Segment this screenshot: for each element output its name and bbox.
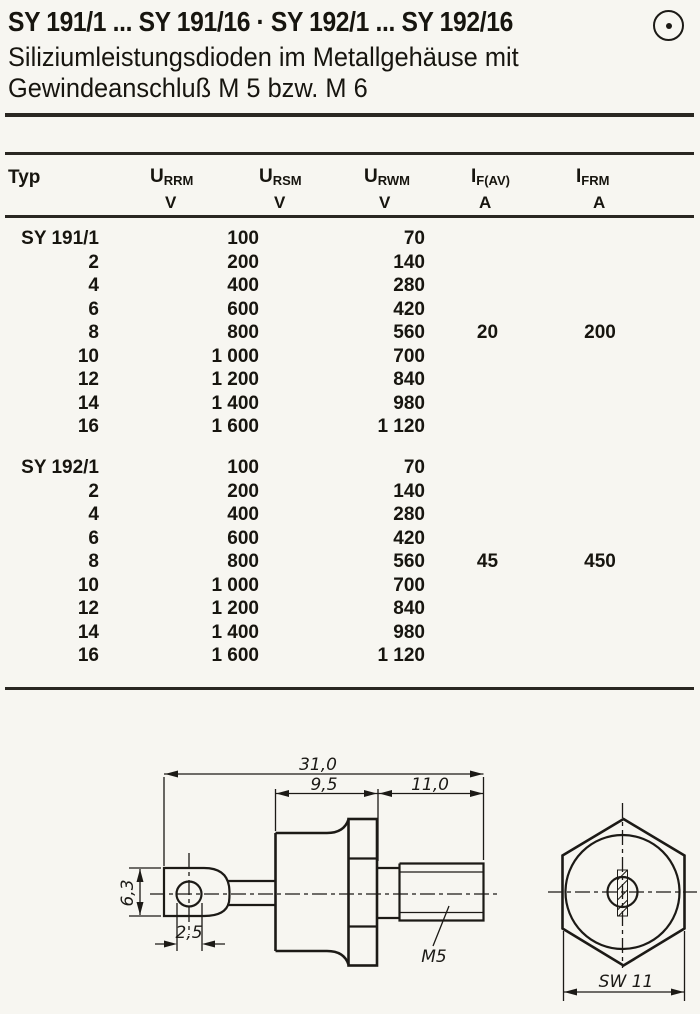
dim-hole-label: 2,5 <box>175 923 202 943</box>
table-row: 141 400980 <box>0 392 700 416</box>
case-body <box>276 820 349 965</box>
hex-facet-lines <box>349 859 378 927</box>
table-row: 6600420 <box>0 298 700 322</box>
urrm-value-cell: 1 400 <box>100 392 259 416</box>
urwm-value-cell: 140 <box>270 251 425 275</box>
type-cell: 10 <box>0 345 99 369</box>
column-unit: V <box>379 193 410 212</box>
dim-body-label: 9,5 <box>310 775 337 795</box>
urwm-value-cell: 840 <box>270 597 425 621</box>
table-row: 161 6001 120 <box>0 415 700 439</box>
horizontal-rule-table-top <box>5 152 694 155</box>
thread-label: M5 <box>421 947 446 967</box>
type-cell: 14 <box>0 621 99 645</box>
column-symbol: URRM <box>150 167 193 190</box>
column-header-typ: Typ <box>8 167 40 189</box>
lug-outline <box>164 868 230 916</box>
table-row: 4400280 <box>0 274 700 298</box>
urwm-value-cell: 140 <box>270 480 425 504</box>
urwm-value-cell: 1 120 <box>270 644 425 668</box>
arrowhead <box>470 790 483 797</box>
column-header-ifrm: IFRM A <box>576 167 609 212</box>
column-unit: A <box>593 193 609 212</box>
urrm-value-cell: 1 400 <box>100 621 259 645</box>
stud-neck <box>377 868 400 918</box>
urwm-value-cell: 70 <box>270 456 425 480</box>
wrench-size-label: SW 11 <box>599 972 654 992</box>
urwm-value-cell: 560 <box>270 550 425 574</box>
table-row: 161 6001 120 <box>0 644 700 668</box>
column-symbol: IF(AV) <box>471 167 510 190</box>
urwm-value-cell: 420 <box>270 298 425 322</box>
table-row: 141 400980 <box>0 621 700 645</box>
end-view-centerlines <box>548 803 697 968</box>
arrowhead <box>276 790 289 797</box>
urrm-value-cell: 1 000 <box>100 345 259 369</box>
side-view-drawing: 31,0 9,5 11,0 6,3 2,5 M5 <box>105 745 510 985</box>
datasheet-page: SY 191/1 ... SY 191/16 · SY 192/1 ... SY… <box>0 0 700 1014</box>
urrm-value-cell: 1 600 <box>100 644 259 668</box>
subtitle-line-2: Gewindeanschluß M 5 bzw. M 6 <box>8 73 368 104</box>
table-row: 2200140 <box>0 251 700 275</box>
table-row: 6600420 <box>0 527 700 551</box>
type-cell: 10 <box>0 574 99 598</box>
column-header-urwm: URWM V <box>364 167 410 212</box>
urrm-value-cell: 1 600 <box>100 415 259 439</box>
urwm-value-cell: 280 <box>270 503 425 527</box>
type-cell: 12 <box>0 597 99 621</box>
urrm-value-cell: 1 200 <box>100 597 259 621</box>
page-title-text: SY 191/1 ... SY 191/16 · SY 192/1 ... SY… <box>8 6 513 38</box>
urrm-value-cell: 200 <box>100 480 259 504</box>
type-cell: SY 192/1 <box>0 456 99 480</box>
table-block-sy192: SY 192/110070220014044002806600420880056… <box>0 456 700 668</box>
dim-lug-height-label: 6,3 <box>118 879 138 906</box>
urwm-value-cell: 700 <box>270 574 425 598</box>
arrowhead <box>165 771 178 778</box>
urwm-value-cell: 980 <box>270 621 425 645</box>
subtitle-line-1: Siliziumleistungsdioden im Metallgehäuse… <box>8 42 519 73</box>
column-header-ifav: IF(AV) A <box>471 167 510 212</box>
table-row: 121 200840 <box>0 597 700 621</box>
urrm-value-cell: 800 <box>100 321 259 345</box>
table-row: SY 191/110070 <box>0 227 700 251</box>
table-row: 101 000700 <box>0 345 700 369</box>
arrowhead <box>671 989 684 996</box>
type-cell: 12 <box>0 368 99 392</box>
horizontal-rule-table-bottom <box>5 687 694 690</box>
urwm-value-cell: 420 <box>270 527 425 551</box>
urrm-value-cell: 1 000 <box>100 574 259 598</box>
page-subtitle: Siliziumleistungsdioden im Metallgehäuse… <box>8 42 551 104</box>
type-cell: 4 <box>0 274 99 298</box>
urwm-value-cell: 980 <box>270 392 425 416</box>
arrowhead <box>470 771 483 778</box>
ifrm-value-cell: 200 <box>550 322 650 344</box>
column-symbol: URWM <box>364 167 410 190</box>
column-header-urrm: URRM V <box>150 167 193 212</box>
type-cell: SY 191/1 <box>0 227 99 251</box>
urrm-value-cell: 600 <box>100 298 259 322</box>
table-row: 4400280 <box>0 503 700 527</box>
type-cell: 6 <box>0 298 99 322</box>
arrowhead <box>379 790 392 797</box>
table-block-sy191: SY 191/110070220014044002806600420880056… <box>0 227 700 439</box>
column-unit: A <box>479 193 510 212</box>
type-cell: 14 <box>0 392 99 416</box>
type-cell: 8 <box>0 321 99 345</box>
urwm-value-cell: 280 <box>270 274 425 298</box>
type-cell: 2 <box>0 480 99 504</box>
urwm-value-cell: 70 <box>270 227 425 251</box>
table-row: 101 000700 <box>0 574 700 598</box>
page-title: SY 191/1 ... SY 191/16 · SY 192/1 ... SY… <box>8 6 582 38</box>
dim-stud-label: 11,0 <box>411 775 449 795</box>
end-view-drawing: SW 11 <box>535 785 700 1014</box>
thread-minor-lines <box>400 872 483 913</box>
column-symbol: URSM <box>259 167 302 190</box>
column-header-ursm: URSM V <box>259 167 302 212</box>
type-cell: 16 <box>0 644 99 668</box>
type-cell: 2 <box>0 251 99 275</box>
dim-total-label: 31,0 <box>299 755 337 775</box>
arrowhead <box>564 989 577 996</box>
ifav-value-cell: 20 <box>455 322 520 344</box>
arrowhead <box>202 941 215 948</box>
column-unit: V <box>274 193 302 212</box>
table-row: SY 192/110070 <box>0 456 700 480</box>
urrm-value-cell: 100 <box>100 227 259 251</box>
column-unit: V <box>165 193 193 212</box>
horizontal-rule-top <box>5 113 694 117</box>
type-cell: 16 <box>0 415 99 439</box>
type-cell: 4 <box>0 503 99 527</box>
urrm-value-cell: 800 <box>100 550 259 574</box>
urrm-value-cell: 1 200 <box>100 368 259 392</box>
urwm-value-cell: 560 <box>270 321 425 345</box>
column-symbol: IFRM <box>576 167 609 190</box>
table-row: 2200140 <box>0 480 700 504</box>
urwm-value-cell: 840 <box>270 368 425 392</box>
urrm-value-cell: 400 <box>100 274 259 298</box>
urrm-value-cell: 400 <box>100 503 259 527</box>
urwm-value-cell: 700 <box>270 345 425 369</box>
circled-dot-center <box>666 23 672 29</box>
urrm-value-cell: 600 <box>100 527 259 551</box>
table-row: 121 200840 <box>0 368 700 392</box>
hex-flange <box>349 819 378 966</box>
lead-wire <box>227 881 276 905</box>
horizontal-rule-header-bottom <box>5 215 694 218</box>
arrowhead <box>364 790 377 797</box>
ifrm-value-cell: 450 <box>550 551 650 573</box>
type-cell: 6 <box>0 527 99 551</box>
urrm-value-cell: 200 <box>100 251 259 275</box>
ifav-value-cell: 45 <box>455 551 520 573</box>
type-cell: 8 <box>0 550 99 574</box>
urrm-value-cell: 100 <box>100 456 259 480</box>
urwm-value-cell: 1 120 <box>270 415 425 439</box>
circled-dot-icon <box>653 10 684 41</box>
